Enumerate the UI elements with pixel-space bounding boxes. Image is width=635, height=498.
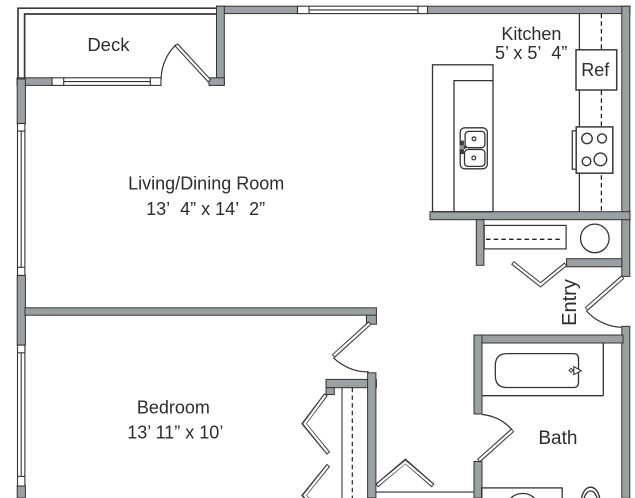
svg-text:Deck: Deck (87, 34, 130, 55)
svg-text:13’ 4” x 14’ 2”: 13’ 4” x 14’ 2” (146, 199, 265, 219)
svg-text:Ref: Ref (581, 60, 610, 80)
svg-text:Bath: Bath (538, 428, 577, 449)
svg-text:Living/Dining Room: Living/Dining Room (128, 174, 284, 194)
svg-text:5’ x 5’ 4”: 5’ x 5’ 4” (495, 43, 567, 63)
svg-text:Kitchen: Kitchen (501, 24, 561, 44)
svg-text:Entry: Entry (559, 279, 581, 326)
svg-text:13’ 11” x 10’: 13’ 11” x 10’ (127, 423, 223, 443)
svg-text:Bedroom: Bedroom (137, 398, 210, 418)
